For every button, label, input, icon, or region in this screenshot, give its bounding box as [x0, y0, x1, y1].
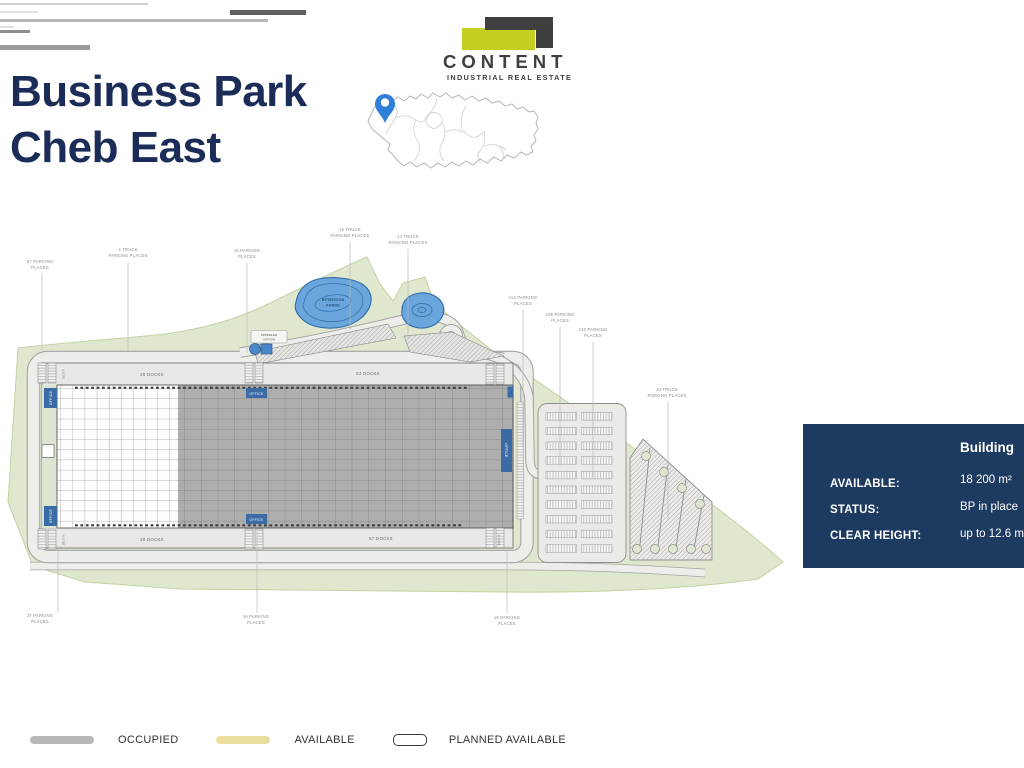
- office-label: OFFICE: [504, 443, 508, 458]
- parking-label: PLACES: [31, 265, 49, 270]
- office-label: OFFICE: [249, 518, 264, 522]
- logo-wordmark: CONTENT: [443, 51, 583, 73]
- retention-ponds-label: PONDS: [326, 304, 340, 308]
- office-label: OFFICE: [49, 508, 53, 523]
- parking-label: PARKING PLACES: [647, 393, 686, 398]
- parking-label: PARKING PLACES: [330, 233, 369, 238]
- docks-label: 53 DOCKS: [356, 371, 380, 376]
- parking-label: PARKING PLACES: [388, 240, 427, 245]
- artifact-line: [0, 30, 30, 33]
- legend-occupied-label: OCCUPIED: [118, 734, 178, 746]
- slide: Business Park Cheb East CONTENT INDUSTRI…: [0, 0, 1024, 768]
- parking-label: PLACES: [31, 619, 49, 624]
- site-plan: 57 PARKING PLACES 4 TRUCK PARKING PLACES…: [0, 218, 792, 670]
- parking-label: PARKING PLACES: [108, 253, 147, 258]
- deck-in-label: DECK IN: [62, 535, 66, 546]
- artifact-line: [0, 45, 90, 50]
- parking-label: 16 PARKING: [243, 614, 269, 619]
- office-label: OFFICE: [249, 392, 264, 396]
- info-label: CLEAR HEIGHT:: [830, 530, 921, 542]
- location-pin-hole: [381, 98, 389, 106]
- logo-dark-block: [536, 17, 553, 48]
- info-label: AVAILABLE:: [830, 478, 900, 490]
- deck-in-label: DECK IN: [62, 369, 66, 380]
- available-swatch: [216, 736, 270, 744]
- car-parking-lot: [538, 404, 626, 563]
- office-label: OFFICE: [49, 390, 53, 405]
- parking-label: PLACES: [238, 254, 256, 259]
- parking-label: 16 PARKING: [234, 248, 260, 253]
- parking-label: 112 PARKING: [509, 295, 538, 300]
- parking-label: PLACES: [551, 318, 569, 323]
- parking-label: 16 TRUCK: [339, 227, 361, 232]
- legend: OCCUPIED AVAILABLE PLANNED AVAILABLE: [30, 730, 566, 750]
- parking-label: PLACES: [498, 621, 516, 626]
- truck-parking-area: [630, 439, 712, 560]
- parking-label: PLACES: [584, 333, 602, 338]
- info-label: STATUS:: [830, 504, 880, 516]
- building: [38, 363, 513, 549]
- docks-label: 57 DOCKS: [369, 536, 393, 541]
- sprinkler-label: STATION: [263, 337, 275, 341]
- parking-label: 14 TRUCK: [397, 234, 419, 239]
- retention-ponds-label: RETENTION: [322, 298, 345, 302]
- legend-available-label: AVAILABLE: [294, 734, 354, 746]
- info-value: 18 200 m²: [960, 474, 1012, 486]
- occupied-swatch: [30, 736, 94, 744]
- parking-label: 37 PARKING: [27, 613, 53, 618]
- artifact-line: [0, 26, 14, 28]
- info-value: BP in place: [960, 501, 1018, 513]
- parking-label: 34 TRUCK: [656, 387, 678, 392]
- artifact-line: [230, 10, 306, 15]
- building-blue-sliver: [508, 387, 514, 398]
- parking-label: 4 TRUCK: [118, 247, 137, 252]
- docks-label: 29 DOCKS: [140, 537, 164, 542]
- page-title-line2: Cheb East: [10, 120, 307, 176]
- artifact-line: [0, 3, 148, 5]
- artifact-line: [0, 11, 38, 13]
- docks-label: 29 DOCKS: [140, 372, 164, 377]
- parking-label: 240 PARKING: [579, 327, 608, 332]
- page-title-line1: Business Park: [10, 64, 307, 120]
- parking-label: 16 PARKING: [494, 615, 520, 620]
- legend-planned-label: PLANNED AVAILABLE: [449, 734, 566, 746]
- building-info-panel: Building AVAILABLE: 18 200 m² STATUS: BP…: [803, 424, 1024, 568]
- parking-label: PLACES: [514, 301, 532, 306]
- side-parking-strip-hatch: [517, 402, 524, 519]
- parking-label: 195 PARKING: [546, 312, 575, 317]
- logo-accent-block: [462, 28, 535, 50]
- building-left-protrusion: [42, 445, 54, 458]
- page-title: Business Park Cheb East: [10, 64, 307, 176]
- planned-available-swatch: [393, 734, 427, 746]
- deck-in-label: DECK IN: [497, 535, 501, 546]
- artifact-line: [0, 19, 268, 22]
- czech-republic-map: [360, 86, 546, 188]
- info-value: up to 12.6 m: [960, 528, 1024, 540]
- parking-label: 57 PARKING: [27, 259, 53, 264]
- logo-tagline: INDUSTRIAL REAL ESTATE: [447, 73, 587, 82]
- parking-label: PLACES: [247, 620, 265, 625]
- building-column-header: Building: [960, 440, 1014, 455]
